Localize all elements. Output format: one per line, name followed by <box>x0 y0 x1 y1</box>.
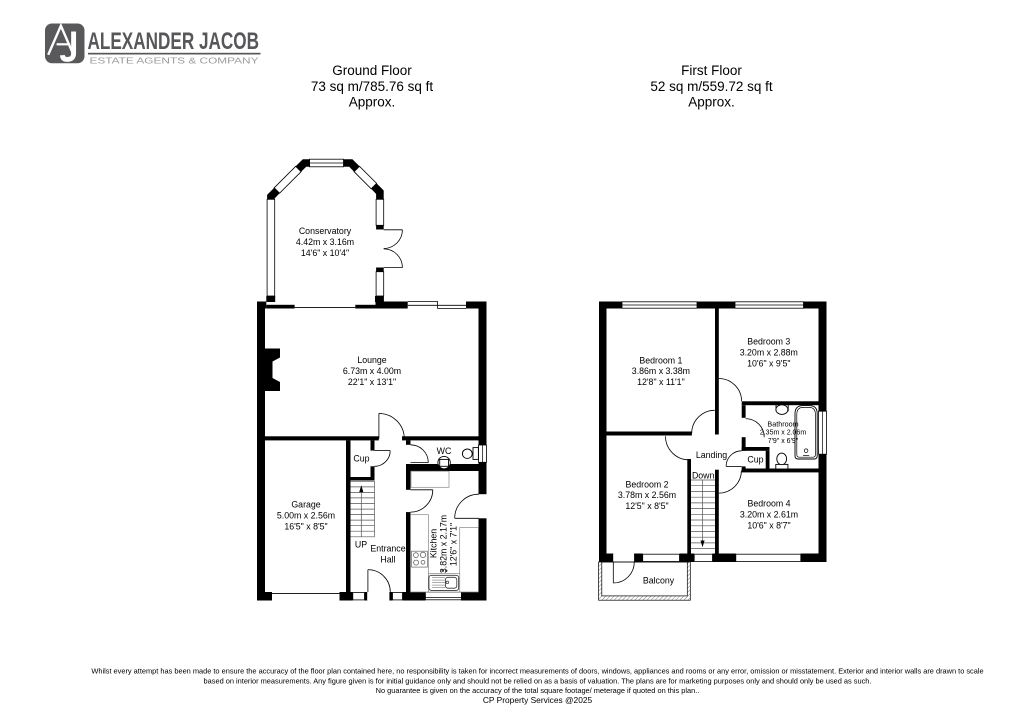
svg-text:16'5" x 8'5": 16'5" x 8'5" <box>284 522 327 532</box>
svg-text:52 sq m/559.72 sq ft: 52 sq m/559.72 sq ft <box>650 79 773 94</box>
svg-text:Bedroom 4: Bedroom 4 <box>747 498 790 508</box>
svg-text:73 sq m/785.76 sq ft: 73 sq m/785.76 sq ft <box>311 79 434 94</box>
svg-text:Balcony: Balcony <box>643 575 675 585</box>
svg-text:10'6" x 8'7": 10'6" x 8'7" <box>747 520 790 530</box>
svg-text:Garage: Garage <box>291 500 320 510</box>
svg-text:12'5" x 8'5": 12'5" x 8'5" <box>625 501 668 511</box>
svg-text:6.73m x 4.00m: 6.73m x 4.00m <box>343 366 401 376</box>
svg-text:Bedroom 2: Bedroom 2 <box>625 479 668 489</box>
svg-text:12'8" x 11'1": 12'8" x 11'1" <box>637 377 685 387</box>
svg-text:Bedroom 3: Bedroom 3 <box>747 337 790 347</box>
svg-text:3.82m x 2.17m: 3.82m x 2.17m <box>439 515 449 573</box>
svg-text:Bathroom: Bathroom <box>767 420 798 429</box>
svg-text:Down: Down <box>692 470 715 480</box>
svg-text:2.35m x 2.06m: 2.35m x 2.06m <box>760 430 806 437</box>
svg-text:5.00m x 2.56m: 5.00m x 2.56m <box>277 511 335 521</box>
svg-text:Bedroom 1: Bedroom 1 <box>639 355 682 365</box>
svg-text:First Floor: First Floor <box>681 63 742 78</box>
svg-text:based on interior measurements: based on interior measurements. Any figu… <box>204 677 872 686</box>
svg-text:Whilst every attempt has been: Whilst every attempt has been made to en… <box>91 667 983 676</box>
svg-text:UP: UP <box>355 540 367 550</box>
svg-text:3.86m x 3.38m: 3.86m x 3.38m <box>632 366 690 376</box>
svg-text:12'6" x 7'1": 12'6" x 7'1" <box>449 523 459 566</box>
svg-text:Cup: Cup <box>353 454 369 464</box>
svg-text:ALEXANDER JACOB: ALEXANDER JACOB <box>88 28 260 55</box>
svg-text:22'1" x 13'1": 22'1" x 13'1" <box>348 377 396 387</box>
svg-text:No guarantee is given on the a: No guarantee is given on the accuracy of… <box>376 686 700 695</box>
svg-text:Lounge: Lounge <box>357 355 386 365</box>
svg-text:Conservatory: Conservatory <box>299 226 352 236</box>
svg-text:Kitchen: Kitchen <box>429 529 439 558</box>
svg-text:10'6" x 9'5": 10'6" x 9'5" <box>747 358 790 368</box>
svg-text:Landing: Landing <box>696 450 727 460</box>
svg-text:14'6" x 10'4": 14'6" x 10'4" <box>301 248 349 258</box>
svg-text:Approx.: Approx. <box>349 95 396 110</box>
svg-text:WC: WC <box>437 446 452 456</box>
svg-text:Cup: Cup <box>747 455 763 465</box>
svg-text:Ground Floor: Ground Floor <box>332 63 412 78</box>
svg-text:3.20m x 2.61m: 3.20m x 2.61m <box>740 509 798 519</box>
svg-text:CP Property Services @2025: CP Property Services @2025 <box>483 695 593 705</box>
svg-text:4.42m x 3.16m: 4.42m x 3.16m <box>296 237 354 247</box>
svg-text:3.78m x 2.56m: 3.78m x 2.56m <box>618 490 676 500</box>
svg-text:Approx.: Approx. <box>688 95 735 110</box>
svg-text:Hall: Hall <box>380 555 395 565</box>
svg-text:3.20m x 2.88m: 3.20m x 2.88m <box>740 348 798 358</box>
svg-text:7'9" x 6'9": 7'9" x 6'9" <box>768 438 799 445</box>
svg-text:Entrance: Entrance <box>370 544 405 554</box>
svg-text:ESTATE AGENTS & COMPANY: ESTATE AGENTS & COMPANY <box>90 56 260 65</box>
